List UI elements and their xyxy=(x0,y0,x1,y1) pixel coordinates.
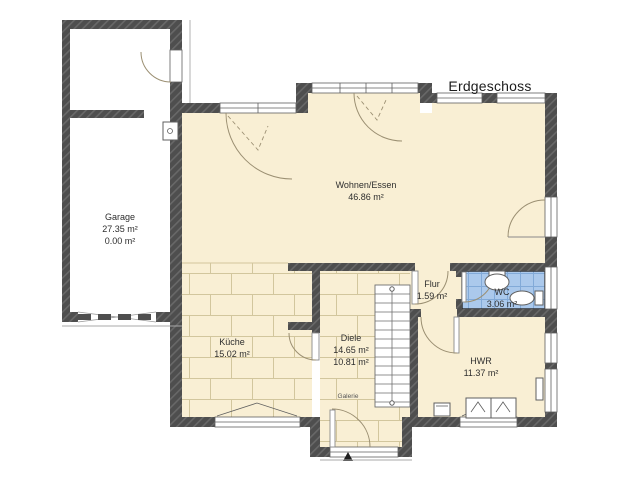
window-top-left xyxy=(220,103,296,113)
floor-plan: Erdgeschoss Garage 27.35 m² 0.00 m² Wohn… xyxy=(0,0,640,480)
boiler-icon xyxy=(434,403,450,416)
window-wc xyxy=(545,267,557,309)
front-door-leaf xyxy=(330,410,335,447)
wc-name: WC xyxy=(462,286,542,298)
hwr-area: 11.37 m² xyxy=(421,367,541,379)
flur-area: 1.59 m² xyxy=(402,290,462,302)
garage-living-area: 0.00 m² xyxy=(60,235,180,247)
garage-name: Garage xyxy=(60,211,180,223)
diele-area: 14.65 m² xyxy=(306,344,396,356)
window-top-right-1 xyxy=(437,93,482,103)
living-right-floor xyxy=(432,103,545,115)
room-label-flur: Flur 1.59 m² xyxy=(402,278,462,302)
room-label-garage: Garage 27.35 m² 0.00 m² xyxy=(60,211,180,247)
galerie-name: Galerie xyxy=(326,393,370,401)
room-label-kueche: Küche 15.02 m² xyxy=(172,336,292,360)
plan-title: Erdgeschoss xyxy=(425,78,555,94)
window-bay-glass-front xyxy=(312,83,418,93)
hwr-door-leaf xyxy=(454,317,459,353)
window-right-2 xyxy=(545,369,557,412)
kueche-name: Küche xyxy=(172,336,292,348)
room-label-wohnen-essen: Wohnen/Essen 46.86 m² xyxy=(296,179,436,203)
kueche-area: 15.02 m² xyxy=(172,348,292,360)
garage-area: 27.35 m² xyxy=(60,223,180,235)
window-kitchen xyxy=(215,417,300,427)
garage-side-door xyxy=(170,50,182,82)
radiator-icon xyxy=(536,378,543,400)
window-right-1 xyxy=(545,333,557,363)
diele-name: Diele xyxy=(306,332,396,344)
terrace-door-right xyxy=(545,197,557,237)
room-label-wc: WC 3.06 m² xyxy=(462,286,542,310)
front-door-opening xyxy=(330,447,398,457)
wohnen-essen-name: Wohnen/Essen xyxy=(296,179,436,191)
garage-floor xyxy=(70,29,170,312)
room-label-diele: Diele 14.65 m² 10.81 m² xyxy=(306,332,396,368)
dryer-icon xyxy=(491,398,516,418)
wohnen-essen-area: 46.86 m² xyxy=(296,191,436,203)
window-top-right-2 xyxy=(497,93,545,103)
washer-icon xyxy=(466,398,491,418)
wc-area: 3.06 m² xyxy=(462,298,542,310)
room-label-hwr: HWR 11.37 m² xyxy=(421,355,541,379)
room-label-galerie: Galerie xyxy=(326,393,370,401)
hwr-name: HWR xyxy=(421,355,541,367)
diele-living-area: 10.81 m² xyxy=(306,356,396,368)
meter-box-icon xyxy=(163,122,178,140)
flur-name: Flur xyxy=(402,278,462,290)
